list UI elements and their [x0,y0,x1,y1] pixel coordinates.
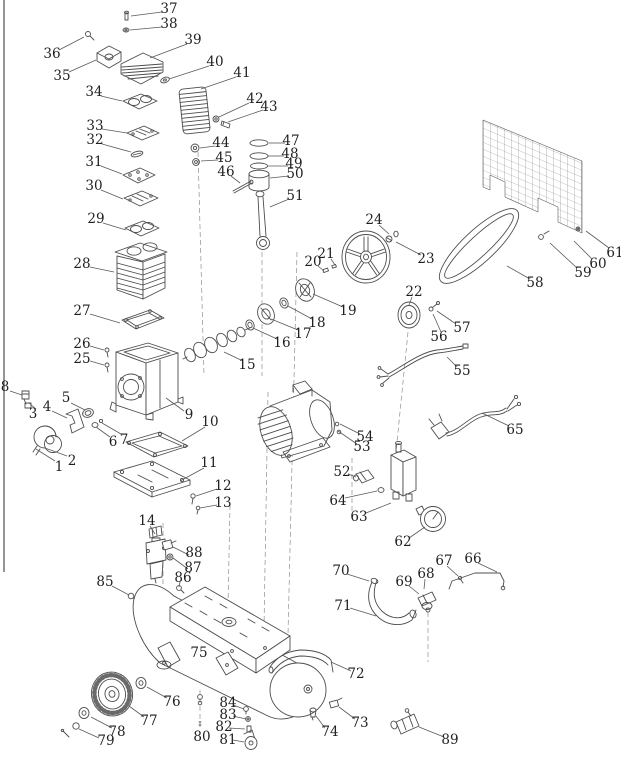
part-21-key [332,264,337,268]
part-34-head-gasket [123,94,157,109]
part-label-34: 34 [85,84,102,100]
part-label-54: 54 [356,429,373,445]
part-label-35: 35 [53,68,70,84]
part-label-38: 38 [160,16,177,32]
part-label-28: 28 [73,256,90,272]
part-label-31: 31 [85,154,102,170]
part-label-89: 89 [441,732,458,748]
leader-line-28 [90,267,114,272]
leader-line-39 [150,44,187,58]
leader-line-89 [419,727,444,737]
leader-line-42 [219,103,249,117]
leader-line-33 [102,129,127,133]
part-labels-layer: 1234567891011121314151617181920212223242… [1,1,621,749]
leader-line-7 [102,423,121,434]
leader-line-36 [59,37,84,50]
part-7-clip [99,419,102,422]
part-label-68: 68 [417,566,434,582]
exploded-parts-diagram: 1234567891011121314151617181920212223242… [0,0,621,768]
part-label-14: 14 [138,513,155,529]
part-38-washer [123,28,129,32]
part-77-wheel [87,668,136,720]
part-22-pulley [398,302,420,328]
part-label-63: 63 [350,509,367,525]
part-label-56: 56 [430,329,447,345]
part-label-85: 85 [96,574,113,590]
part-57-washer [437,302,440,305]
part-label-12: 12 [214,478,231,494]
part-10-gasket [126,432,188,457]
part-79-cotter-pin [61,723,79,737]
part-41-filter-element [179,87,211,135]
leader-line-41 [201,77,236,89]
part-label-33: 33 [86,118,103,134]
leader-line-38 [130,27,162,30]
part-label-65: 65 [506,422,523,438]
part-label-3: 3 [29,406,38,422]
part-label-71: 71 [334,598,351,614]
part-label-1: 1 [55,459,64,475]
part-81-caster [244,730,257,750]
part-label-36: 36 [43,46,60,62]
part-50-piston [249,170,269,191]
part-label-13: 13 [214,495,231,511]
part-73-fitting [329,698,342,708]
part-37-bolt [125,11,129,20]
part-39-head-cover [121,53,163,84]
part-35-filter-housing [97,46,121,68]
leader-line-59 [550,243,577,268]
part-label-32: 32 [86,132,103,148]
part-6-washer [92,423,98,428]
part-62-pressure-gauge [416,506,446,532]
part-13-bolt [196,506,200,514]
part-label-6: 6 [109,434,118,450]
part-label-4: 4 [43,399,52,415]
part-label-24: 24 [365,212,382,228]
part-label-80: 80 [193,729,210,745]
part-11-base-plate [114,461,190,497]
part-label-43: 43 [260,99,277,115]
leader-line-37 [131,12,162,16]
part-17-flange [255,301,278,326]
part-51-connecting-rod [256,191,270,249]
part-label-66: 66 [464,551,481,567]
part-label-8: 8 [1,379,10,395]
leader-line-29 [103,223,126,230]
part-32-reed-valve [131,150,144,158]
leader-line-31 [101,166,122,174]
part-87-nut [167,554,173,560]
leader-line-63 [366,503,391,513]
part-59-belt-guard [483,120,582,233]
leader-line-70 [347,574,369,581]
leader-line-30 [101,190,123,199]
part-4-bracket [66,409,84,433]
part-label-16: 16 [273,335,290,351]
leader-line-26 [90,346,104,350]
part-label-23: 23 [417,251,434,267]
part-88-elbow-fitting [162,540,176,550]
part-label-76: 76 [163,694,180,710]
part-label-74: 74 [321,724,338,740]
part-49-piston-ring [251,163,268,169]
part-27-base-gasket [122,310,164,329]
part-label-79: 79 [97,733,114,749]
part-label-73: 73 [351,715,368,731]
part-label-88: 88 [185,545,202,561]
part-52-check-fitting [354,470,375,483]
part-1-pump-body [33,426,62,455]
leader-line-27 [90,314,120,323]
leader-line-34 [101,96,122,101]
part-label-55: 55 [453,363,470,379]
part-47-piston-ring [250,140,268,146]
part-60-guard-bolt [539,231,549,239]
part-46-piston-pin [233,180,253,193]
part-label-60: 60 [589,256,606,272]
part-76-washer [136,677,146,688]
part-label-58: 58 [526,275,543,291]
leader-line-40 [169,66,209,79]
part-26-bolt [105,348,109,357]
part-63-pressure-switch [391,441,416,501]
leader-line-25 [90,361,104,365]
leader-line-4 [52,411,67,418]
part-label-30: 30 [85,178,102,194]
part-31-plate [123,168,155,183]
part-label-26: 26 [73,336,90,352]
part-24-flywheel [342,231,390,283]
part-label-2: 2 [68,453,77,469]
part-30-valve-plate [124,191,158,206]
part-label-27: 27 [73,303,90,319]
part-label-57: 57 [453,320,470,336]
part-28-cylinder-block [115,243,167,299]
leader-line-8 [10,391,22,395]
part-label-64: 64 [329,493,346,509]
part-64-switch-fitting [378,488,384,493]
part-8-plug [22,391,29,404]
part-12-bolt [191,494,195,504]
part-label-18: 18 [308,315,325,331]
part-label-21: 21 [317,246,334,262]
part-label-46: 46 [217,164,234,180]
leader-line-85 [112,586,129,595]
part-40-connector [160,76,170,84]
exploded-parts-diagram-page: 1234567891011121314151617181920212223242… [0,0,621,768]
part-78-washer [79,707,89,718]
leader-line-32 [102,144,131,152]
part-label-61: 61 [606,245,621,261]
part-56-bolt [429,304,437,311]
part-25-bolt [105,363,109,372]
part-label-11: 11 [200,455,217,471]
part-label-69: 69 [395,574,412,590]
part-label-87: 87 [184,560,201,576]
part-label-22: 22 [405,284,422,300]
part-label-41: 41 [233,65,250,81]
part-68-union-fitting [418,592,436,612]
part-label-77: 77 [140,713,157,729]
part-label-10: 10 [201,414,218,430]
part-label-37: 37 [160,1,177,17]
part-label-19: 19 [339,303,356,319]
part-42-washer [213,116,219,122]
part-83-washer [246,717,251,722]
part-label-62: 62 [394,534,411,550]
part-label-40: 40 [206,54,223,70]
part-29-gasket [125,221,159,236]
part-label-67: 67 [435,553,452,569]
part-58-v-belt [430,199,528,293]
part-label-52: 52 [333,464,350,480]
part-label-7: 7 [120,432,129,448]
part-9-crankcase [110,343,183,420]
part-18-seal-ring [278,297,289,310]
leader-line-79 [79,729,99,738]
part-label-75: 75 [190,645,207,661]
part-label-70: 70 [332,563,349,579]
part-label-29: 29 [87,211,104,227]
part-label-44: 44 [212,135,229,151]
part-36-screw [86,32,95,41]
part-48-piston-ring [250,153,268,159]
part-label-15: 15 [238,357,255,373]
part-89-check-valve [390,709,419,734]
part-label-51: 51 [286,188,303,204]
part-label-39: 39 [184,32,201,48]
part-label-25: 25 [73,351,90,367]
part-label-72: 72 [347,666,364,682]
part-44-nut [191,144,199,152]
part-84-bolt [244,707,249,714]
leader-line-43 [228,110,263,122]
part-33-valve-plate [127,126,159,140]
leader-line-64 [345,491,377,498]
leader-line-35 [69,60,96,72]
part-label-5: 5 [62,390,71,406]
part-label-9: 9 [185,407,194,423]
part-label-50: 50 [286,166,303,182]
part-86-bolt [177,586,184,593]
part-label-84: 84 [219,695,236,711]
